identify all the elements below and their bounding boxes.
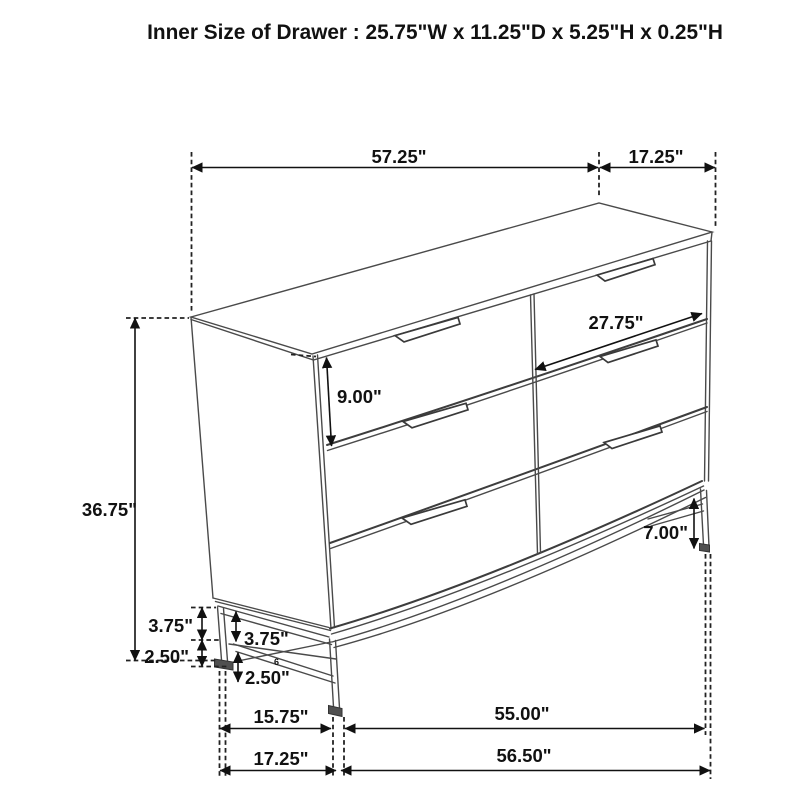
svg-text:17.25": 17.25" <box>628 146 683 167</box>
svg-text:36.75": 36.75" <box>82 499 137 520</box>
svg-text:56.50": 56.50" <box>496 745 551 766</box>
svg-text:3.75": 3.75" <box>148 615 193 636</box>
svg-text:27.75": 27.75" <box>588 312 643 333</box>
svg-text:15.75": 15.75" <box>253 706 308 727</box>
svg-text:2.50": 2.50" <box>144 646 189 667</box>
svg-text:9.00": 9.00" <box>337 386 382 407</box>
svg-text:6: 6 <box>274 657 279 667</box>
svg-text:17.25": 17.25" <box>253 748 308 769</box>
svg-text:Inner Size of Drawer : 25.75"W: Inner Size of Drawer : 25.75"W x 11.25"D… <box>147 21 723 44</box>
svg-text:3.75": 3.75" <box>244 628 289 649</box>
svg-text:55.00": 55.00" <box>494 703 549 724</box>
svg-text:7.00": 7.00" <box>643 522 688 543</box>
svg-text:2.50": 2.50" <box>245 667 290 688</box>
svg-text:57.25": 57.25" <box>371 146 426 167</box>
